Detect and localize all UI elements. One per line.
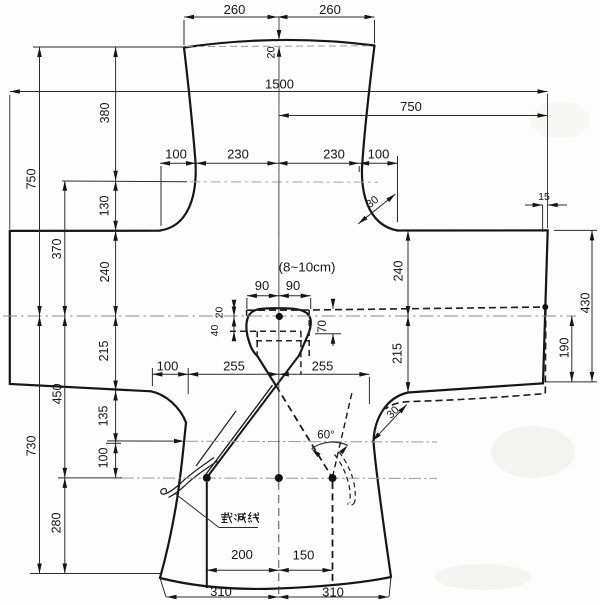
svg-text:240: 240 <box>98 262 112 283</box>
svg-text:260: 260 <box>224 2 246 17</box>
svg-text:730: 730 <box>25 436 39 457</box>
svg-text:230: 230 <box>227 147 249 162</box>
svg-text:450: 450 <box>51 384 65 405</box>
svg-text:(8~10cm): (8~10cm) <box>279 260 336 275</box>
svg-text:90: 90 <box>286 278 300 293</box>
svg-text:230: 230 <box>323 147 345 162</box>
svg-text:130: 130 <box>98 196 112 217</box>
svg-text:90: 90 <box>255 278 269 293</box>
svg-text:20: 20 <box>214 307 226 319</box>
svg-text:40: 40 <box>209 325 221 337</box>
svg-text:370: 370 <box>50 239 64 260</box>
svg-text:70: 70 <box>317 320 329 333</box>
svg-text:135: 135 <box>97 406 111 427</box>
svg-text:240: 240 <box>392 261 406 282</box>
svg-text:1500: 1500 <box>265 77 294 92</box>
svg-text:20: 20 <box>266 46 278 58</box>
svg-text:750: 750 <box>25 169 39 190</box>
svg-text:255: 255 <box>223 359 245 374</box>
svg-text:280: 280 <box>50 513 64 534</box>
svg-text:100: 100 <box>157 359 179 374</box>
svg-text:255: 255 <box>312 359 334 374</box>
svg-text:750: 750 <box>400 99 422 114</box>
svg-text:200: 200 <box>231 547 253 562</box>
svg-text:430: 430 <box>579 293 593 314</box>
svg-text:310: 310 <box>210 584 232 599</box>
svg-text:60°: 60° <box>317 430 334 442</box>
svg-text:100: 100 <box>368 147 390 162</box>
svg-text:215: 215 <box>97 341 111 362</box>
svg-text:150: 150 <box>293 548 315 563</box>
svg-text:215: 215 <box>390 343 404 364</box>
svg-text:15: 15 <box>538 191 550 203</box>
svg-text:100: 100 <box>97 448 111 469</box>
svg-text:310: 310 <box>322 585 344 600</box>
svg-text:100: 100 <box>165 147 187 162</box>
svg-text:190: 190 <box>558 338 572 359</box>
svg-text:260: 260 <box>319 2 341 17</box>
svg-text:380: 380 <box>98 103 112 124</box>
